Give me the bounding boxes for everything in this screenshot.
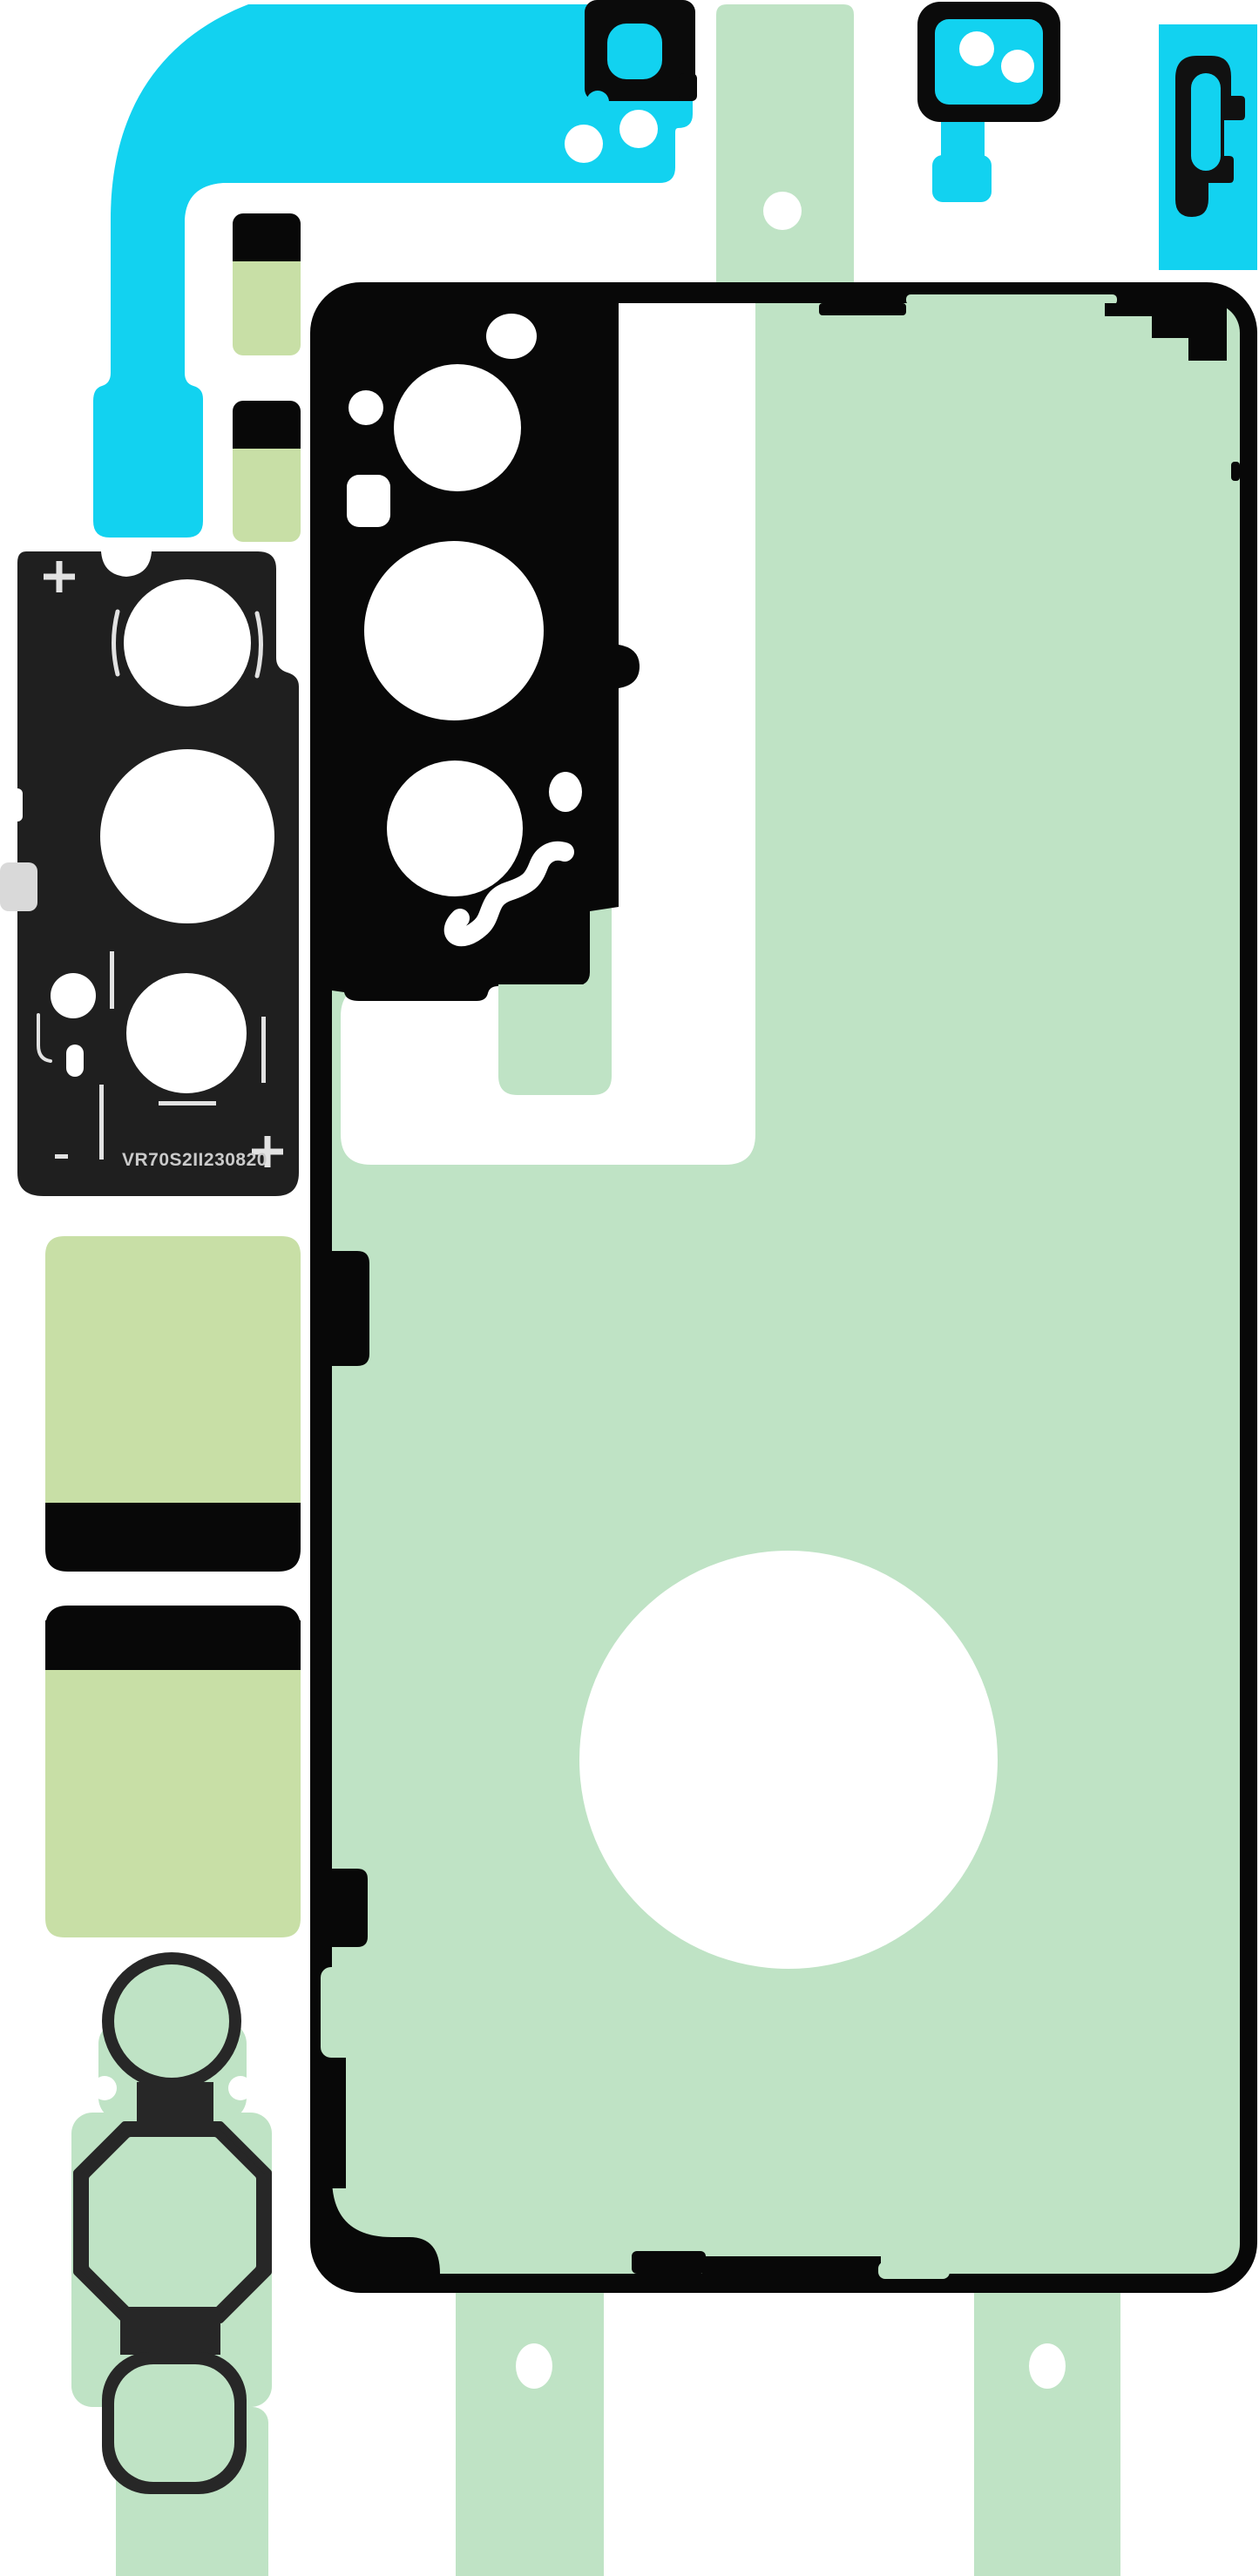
side-bracket-adhesive (1159, 24, 1257, 270)
backing-film-strip-bottom-left (456, 2265, 604, 2576)
strip-hole (1029, 2343, 1066, 2389)
camera-bezel-gasket: VR70S2II230820 (0, 551, 299, 1196)
flex-hole (619, 110, 658, 148)
tick-mark (159, 1101, 216, 1105)
connector-bite (586, 91, 609, 113)
bezel-hole-top (124, 579, 251, 707)
lens-hole-large (364, 541, 544, 720)
bezel-hole-middle (100, 749, 274, 923)
battery-pad-top (45, 1236, 301, 1572)
window-hole (347, 475, 390, 527)
bezel-slot (66, 1045, 84, 1077)
backing-film-strip-top (716, 4, 854, 287)
tick-mark (261, 1017, 266, 1083)
tick-mark (99, 1085, 104, 1160)
backing-notch (92, 2076, 117, 2100)
sensor-hole (349, 390, 383, 425)
battery-pad-bottom (45, 1606, 301, 1937)
mic-hole (549, 772, 582, 812)
lens-hole (1001, 50, 1034, 83)
backing-film-strip-bottom-right (974, 2265, 1120, 2576)
connector-lens-hole (607, 24, 662, 79)
bezel-hole-bottom (126, 973, 247, 1093)
wireless-coil-hole (579, 1551, 998, 1969)
camera-connector-adhesive (585, 0, 697, 113)
side-tab (0, 862, 37, 911)
lens-hole-bottom (387, 761, 523, 896)
tick-mark (110, 951, 114, 1009)
adhesive-kit-sheet: VR70S2II230820 (0, 0, 1259, 2576)
flex-hole (565, 125, 603, 163)
bezel-hole-small (51, 973, 96, 1018)
serial-text: VR70S2II230820 (122, 1150, 267, 1170)
lens-hole (959, 31, 994, 66)
spacer-tab-bottom (233, 401, 301, 542)
strip-hole (763, 192, 802, 230)
backing-notch (228, 2076, 253, 2100)
back-cover-adhesive (310, 282, 1257, 2293)
minus-mark-icon (55, 1154, 68, 1159)
spacer-tab-top (233, 213, 301, 355)
lens-hole-small (394, 364, 521, 491)
flash-hole (486, 314, 537, 359)
strip-hole (516, 2343, 552, 2389)
